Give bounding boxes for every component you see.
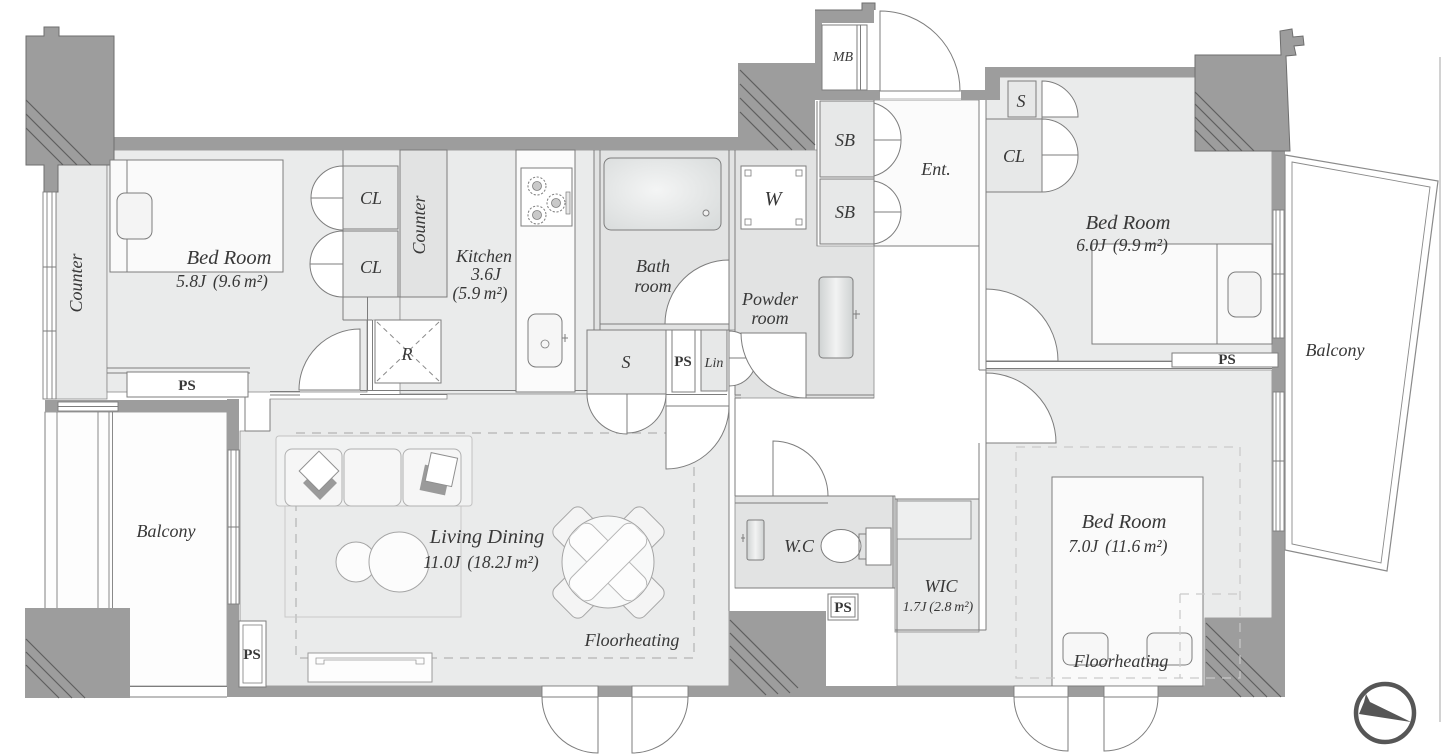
svg-text:(5.9 m²): (5.9 m²) <box>453 283 508 303</box>
svg-text:Lin: Lin <box>704 356 724 371</box>
svg-text:Balcony: Balcony <box>1306 340 1365 360</box>
svg-text:CL: CL <box>360 257 382 277</box>
svg-text:7.0J (11.6 m²): 7.0J (11.6 m²) <box>1068 536 1167 556</box>
svg-text:room: room <box>751 308 788 328</box>
svg-text:Ent.: Ent. <box>920 159 951 179</box>
svg-text:S: S <box>622 352 631 372</box>
svg-text:PS: PS <box>243 647 261 663</box>
svg-text:Living Dining: Living Dining <box>429 526 544 548</box>
svg-text:Bath: Bath <box>636 256 670 276</box>
svg-text:3.6J: 3.6J <box>470 264 502 284</box>
svg-text:CL: CL <box>360 188 382 208</box>
svg-text:PS: PS <box>834 600 852 616</box>
svg-text:Bed Room: Bed Room <box>1082 511 1167 533</box>
svg-text:1.7J (2.8 m²): 1.7J (2.8 m²) <box>903 600 974 615</box>
svg-text:W.C: W.C <box>784 536 815 556</box>
svg-text:Floorheating: Floorheating <box>1073 651 1169 671</box>
svg-text:Balcony: Balcony <box>137 521 196 541</box>
svg-text:PS: PS <box>1218 352 1236 368</box>
svg-text:Powder: Powder <box>741 289 799 309</box>
svg-text:Counter: Counter <box>66 253 86 313</box>
svg-text:CL: CL <box>1003 146 1025 166</box>
svg-text:Bed Room: Bed Room <box>187 247 272 269</box>
svg-text:R: R <box>401 344 413 364</box>
svg-text:PS: PS <box>674 354 692 370</box>
svg-text:5.8J (9.6 m²): 5.8J (9.6 m²) <box>176 271 268 291</box>
svg-text:S: S <box>1017 91 1026 111</box>
svg-text:MB: MB <box>832 50 854 65</box>
svg-text:Counter: Counter <box>409 195 429 255</box>
svg-text:SB: SB <box>835 130 855 150</box>
svg-text:W: W <box>764 188 783 210</box>
svg-text:6.0J (9.9 m²): 6.0J (9.9 m²) <box>1076 235 1168 255</box>
svg-text:WIC: WIC <box>925 576 959 596</box>
svg-text:PS: PS <box>178 378 196 394</box>
svg-text:11.0J (18.2J m²): 11.0J (18.2J m²) <box>423 552 539 572</box>
svg-text:SB: SB <box>835 202 855 222</box>
svg-text:Floorheating: Floorheating <box>584 630 680 650</box>
svg-text:room: room <box>634 276 671 296</box>
svg-text:Bed Room: Bed Room <box>1086 212 1171 234</box>
svg-text:Kitchen: Kitchen <box>455 246 512 266</box>
